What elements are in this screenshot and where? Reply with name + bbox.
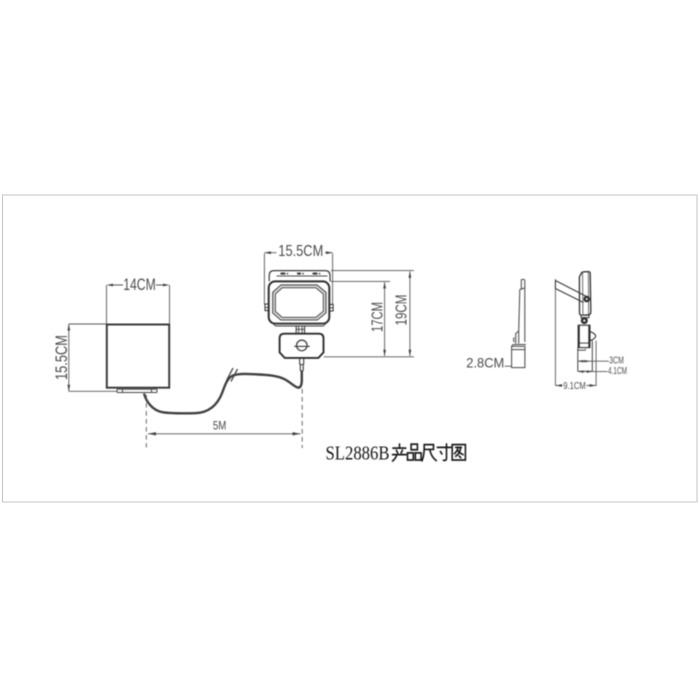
svg-text:5M: 5M (213, 421, 227, 433)
svg-text:9.1CM: 9.1CM (563, 380, 586, 392)
svg-text:3CM: 3CM (609, 355, 624, 366)
svg-text:SL2886B: SL2886B (326, 444, 390, 465)
svg-text:14CM: 14CM (123, 275, 156, 294)
svg-text:15.5CM: 15.5CM (52, 335, 71, 380)
svg-text:19CM: 19CM (393, 295, 410, 326)
svg-text:2.8CM: 2.8CM (466, 354, 504, 370)
svg-text:15.5CM: 15.5CM (278, 243, 323, 260)
svg-text:4.1CM: 4.1CM (608, 366, 627, 377)
svg-text:17CM: 17CM (370, 302, 387, 332)
